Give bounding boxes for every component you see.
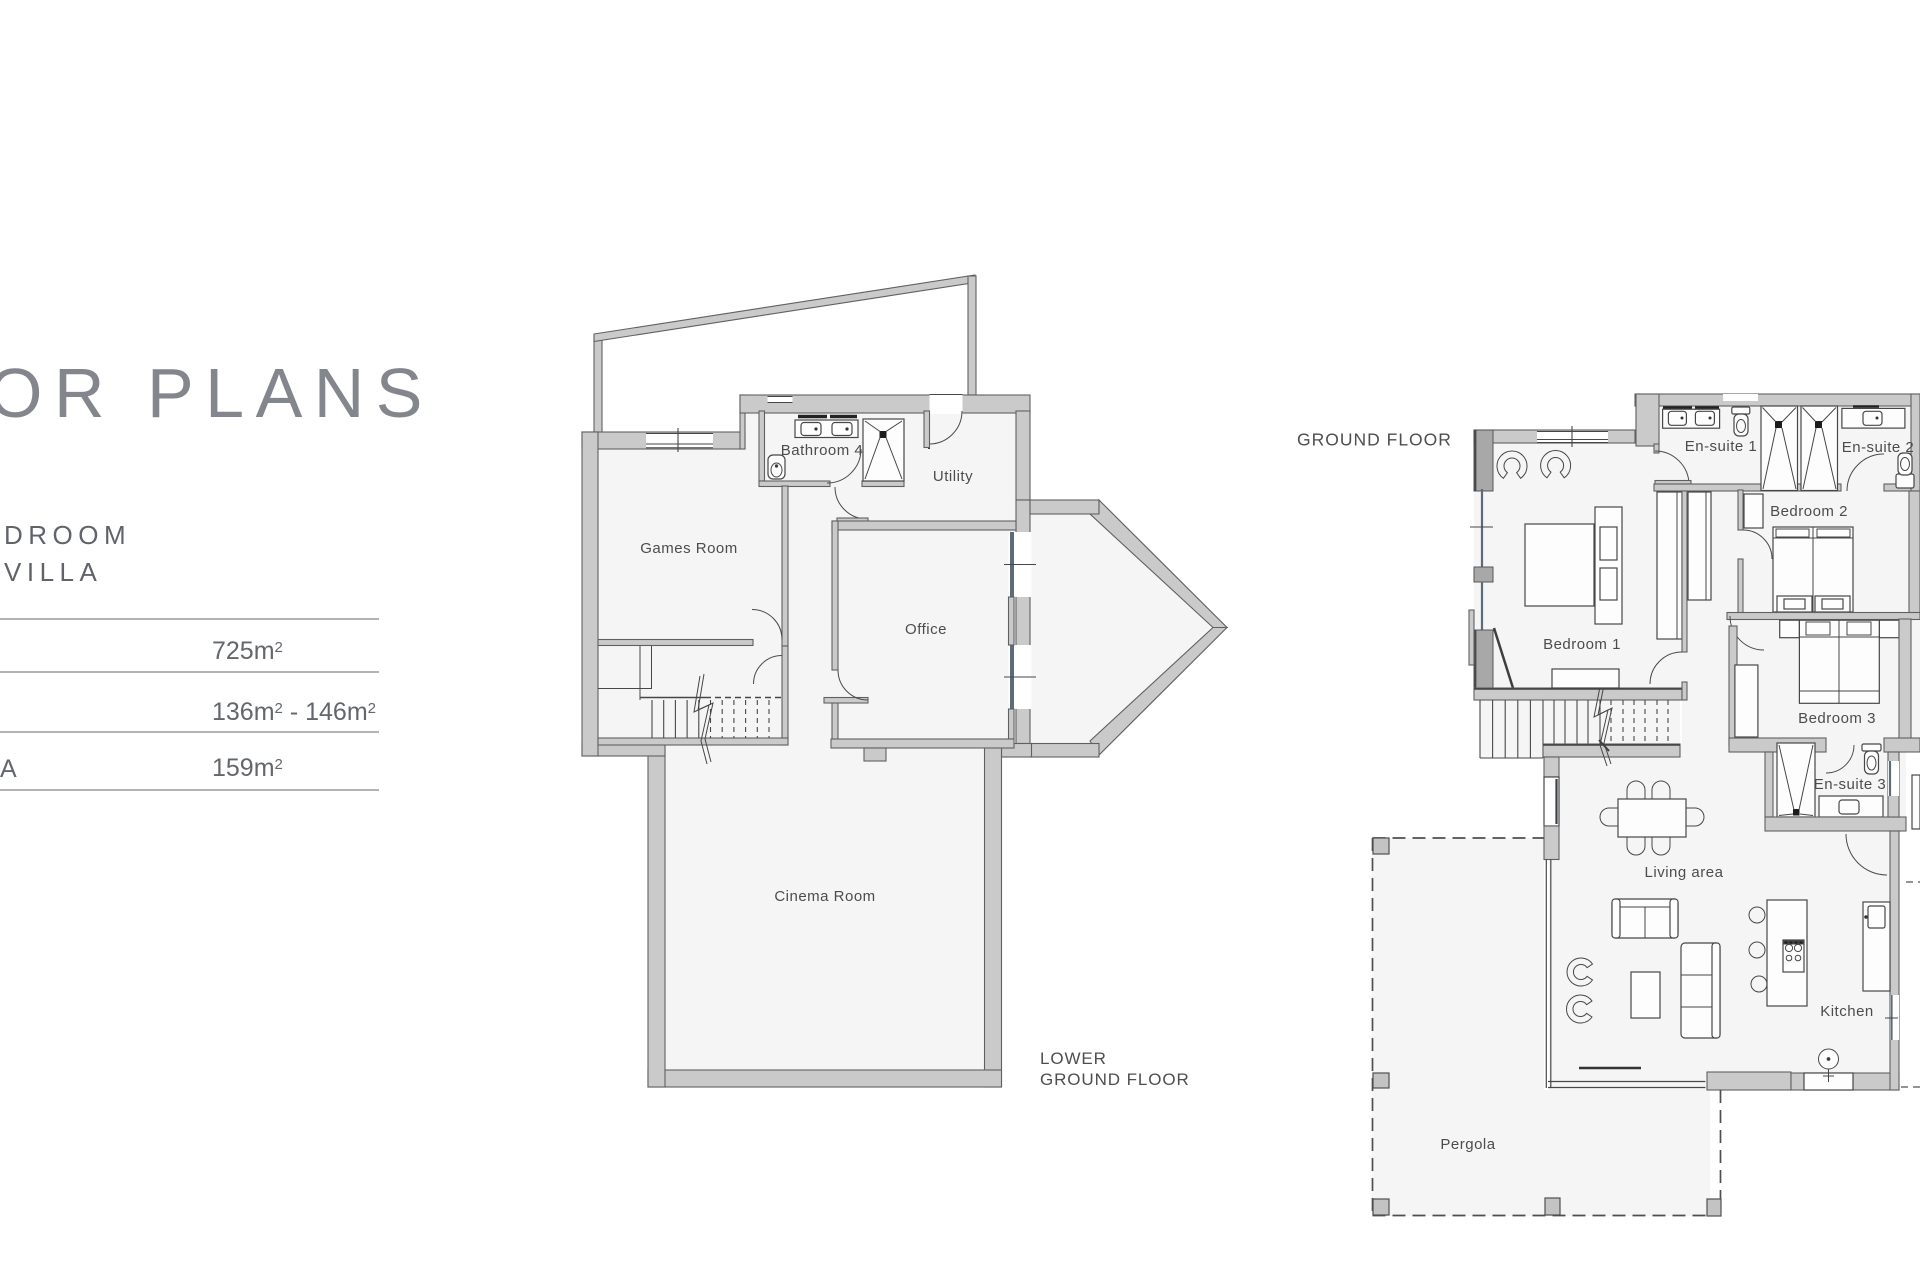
svg-text:136m2 - 146m2: 136m2 - 146m2 [212, 698, 376, 726]
svg-text:DROOM: DROOM [4, 520, 131, 550]
svg-text:En-suite 2: En-suite 2 [1842, 439, 1915, 456]
svg-text:Bedroom 2: Bedroom 2 [1770, 503, 1848, 520]
svg-text:VILLA: VILLA [4, 557, 102, 587]
svg-text:LOWER: LOWER [1040, 1049, 1107, 1068]
svg-text:725m2: 725m2 [212, 637, 283, 665]
svg-text:Games Room: Games Room [640, 540, 738, 557]
svg-text:Kitchen: Kitchen [1820, 1003, 1874, 1020]
svg-text:159m2: 159m2 [212, 754, 283, 782]
svg-text:A: A [0, 755, 17, 783]
svg-text:Cinema Room: Cinema Room [774, 888, 875, 905]
svg-text:Bedroom 1: Bedroom 1 [1543, 636, 1621, 653]
svg-text:En-suite 3: En-suite 3 [1814, 776, 1887, 793]
svg-text:GROUND FLOOR: GROUND FLOOR [1040, 1070, 1190, 1089]
svg-text:Bathroom 4: Bathroom 4 [781, 442, 864, 459]
svg-text:Utility: Utility [933, 468, 973, 485]
svg-text:Living area: Living area [1645, 864, 1724, 881]
svg-text:Bedroom 3: Bedroom 3 [1798, 710, 1876, 727]
svg-text:Pergola: Pergola [1440, 1136, 1495, 1153]
svg-text:En-suite 1: En-suite 1 [1685, 438, 1758, 455]
svg-text:GROUND FLOOR: GROUND FLOOR [1297, 430, 1452, 450]
svg-text:OR PLANS: OR PLANS [0, 354, 434, 432]
svg-text:Office: Office [905, 621, 947, 638]
